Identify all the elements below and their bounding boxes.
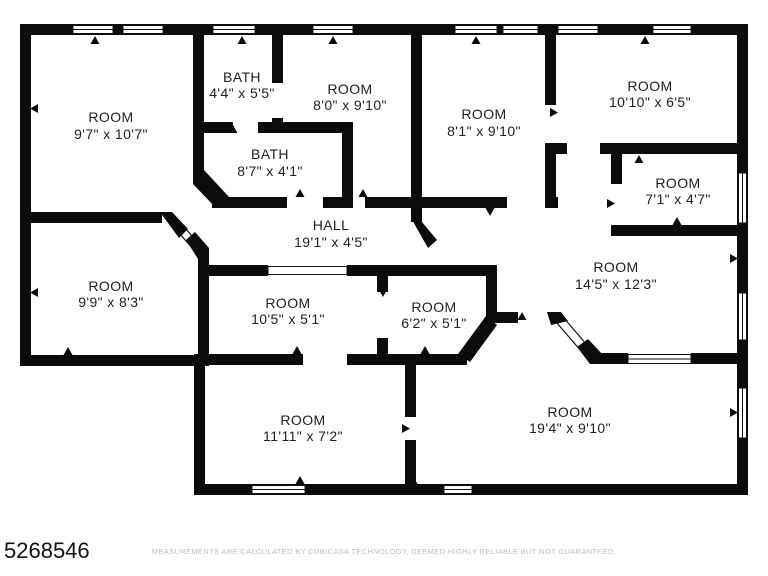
bath-4-4-name: BATH [223,69,261,85]
room-8-0-dims: 8'0" x 9'10" [313,97,387,113]
bath-8-7-dims: 8'7" x 4'1" [237,163,303,179]
room-10-10-name: ROOM [627,78,672,94]
bath-4-4-dims: 4'4" x 5'5" [209,85,275,101]
room-6-2-name: ROOM [411,299,456,315]
room-labels: ROOM 9'7" x 10'7" BATH 4'4" x 5'5" ROOM … [74,69,711,444]
room-8-1-name: ROOM [461,106,506,122]
room-10-10-dims: 10'10" x 6'5" [609,94,691,110]
room-7-1-dims: 7'1" x 4'7" [645,191,711,207]
room-8-1-dims: 8'1" x 9'10" [447,123,521,139]
room-9-7-name: ROOM [88,109,133,125]
floor-plan-page: ROOM 9'7" x 10'7" BATH 4'4" x 5'5" ROOM … [0,0,768,576]
room-14-5-name: ROOM [593,259,638,275]
room-10-5-name: ROOM [265,295,310,311]
hall-dims: 19'1" x 4'5" [294,234,368,250]
room-19-4-dims: 19'4" x 9'10" [529,420,611,436]
room-8-0-name: ROOM [327,81,372,97]
room-11-11-dims: 11'11" x 7'2" [263,428,343,444]
room-19-4-name: ROOM [547,404,592,420]
room-9-9-name: ROOM [88,278,133,294]
hall-name: HALL [313,217,350,233]
room-11-11-name: ROOM [280,412,325,428]
room-7-1-name: ROOM [655,175,700,191]
room-9-7-dims: 9'7" x 10'7" [74,126,148,142]
room-10-5-dims: 10'5" x 5'1" [251,311,325,327]
disclaimer-text: MEASUREMENTS ARE CALCULATED BY CUBICASA … [0,547,768,556]
floor-plan-svg: ROOM 9'7" x 10'7" BATH 4'4" x 5'5" ROOM … [0,0,768,576]
room-9-9-dims: 9'9" x 8'3" [78,294,144,310]
bath-8-7-name: BATH [251,146,289,162]
room-14-5-dims: 14'5" x 12'3" [575,276,657,292]
room-6-2-dims: 6'2" x 5'1" [401,315,467,331]
